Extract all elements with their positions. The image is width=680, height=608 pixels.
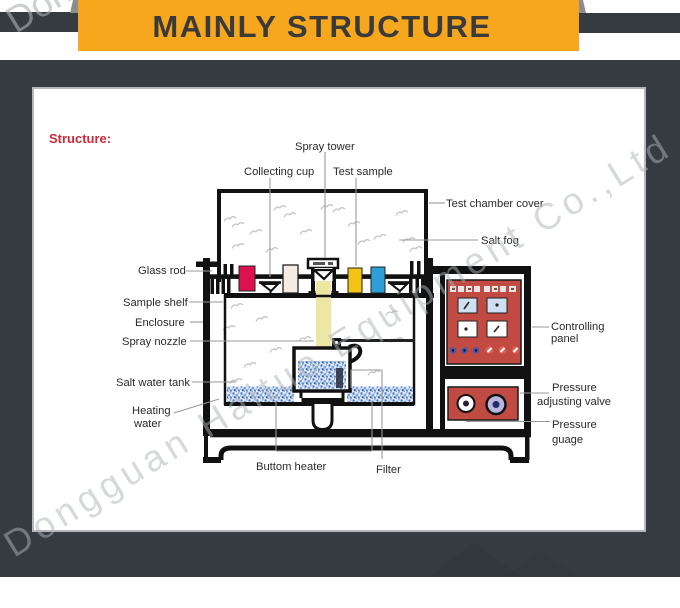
- svg-text:Collecting cup: Collecting cup: [244, 166, 314, 178]
- svg-text:Test sample: Test sample: [333, 166, 393, 178]
- svg-text:adjusting valve: adjusting valve: [537, 396, 611, 408]
- svg-text:MAINLY STRUCTURE: MAINLY STRUCTURE: [152, 9, 491, 44]
- svg-text:Spray nozzle: Spray nozzle: [122, 336, 187, 348]
- svg-text:Glass rod: Glass rod: [138, 265, 186, 277]
- svg-text:Spray tower: Spray tower: [295, 141, 355, 153]
- svg-text:Enclosure: Enclosure: [135, 317, 185, 329]
- svg-text:Buttom heater: Buttom heater: [256, 461, 327, 473]
- svg-text:Sample shelf: Sample shelf: [123, 297, 189, 309]
- svg-text:Pressure: Pressure: [552, 382, 597, 394]
- svg-text:Controlling: Controlling: [551, 321, 604, 333]
- svg-text:Heating: Heating: [132, 405, 171, 417]
- svg-text:water: water: [133, 418, 162, 430]
- svg-text:Structure:: Structure:: [49, 131, 111, 146]
- svg-text:panel: panel: [551, 333, 578, 345]
- svg-text:Salt water tank: Salt water tank: [116, 377, 190, 389]
- svg-text:guage: guage: [552, 434, 583, 446]
- svg-text:Pressure: Pressure: [552, 419, 597, 431]
- svg-text:Filter: Filter: [376, 464, 401, 476]
